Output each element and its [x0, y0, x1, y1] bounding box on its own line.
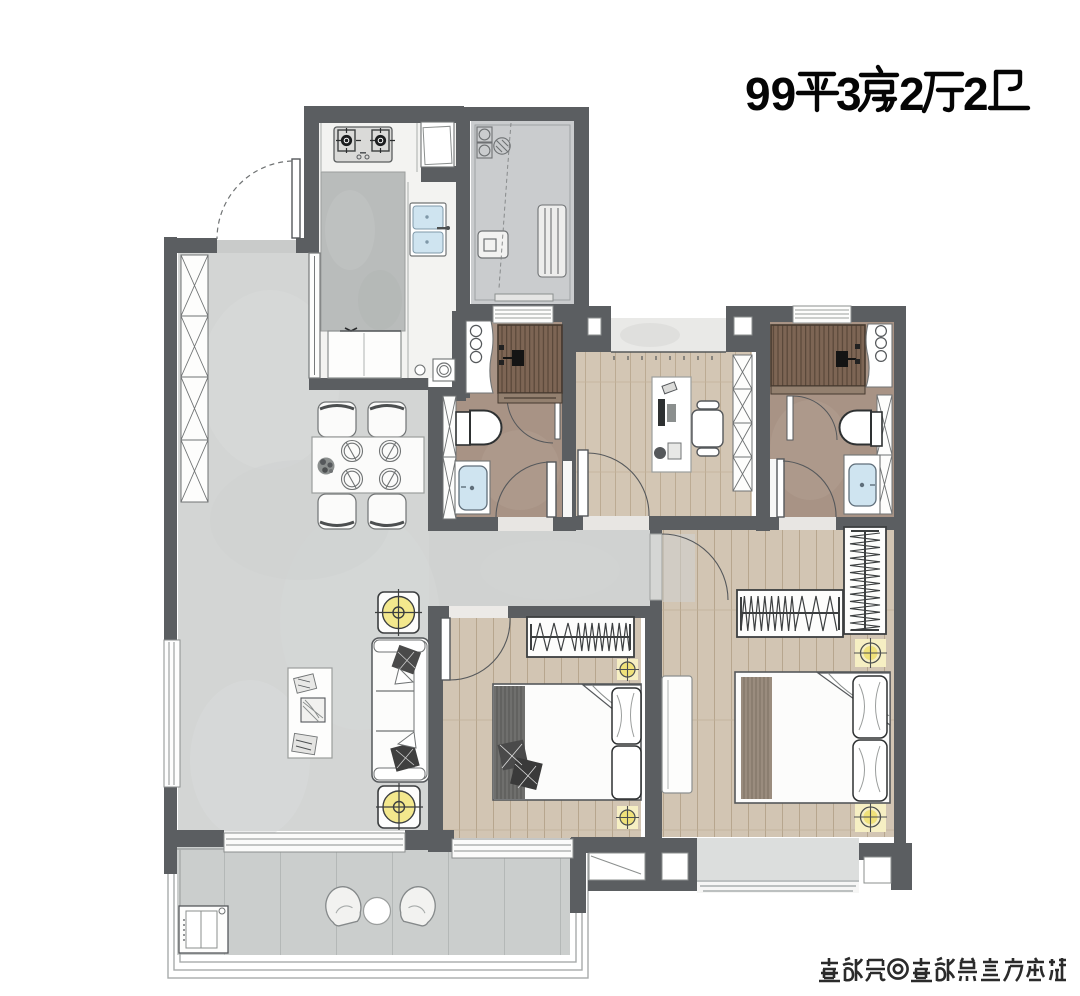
svg-text:3: 3: [836, 68, 862, 120]
svg-text:99: 99: [745, 68, 796, 120]
svg-text:2: 2: [899, 68, 925, 120]
svg-text:2: 2: [963, 68, 989, 120]
